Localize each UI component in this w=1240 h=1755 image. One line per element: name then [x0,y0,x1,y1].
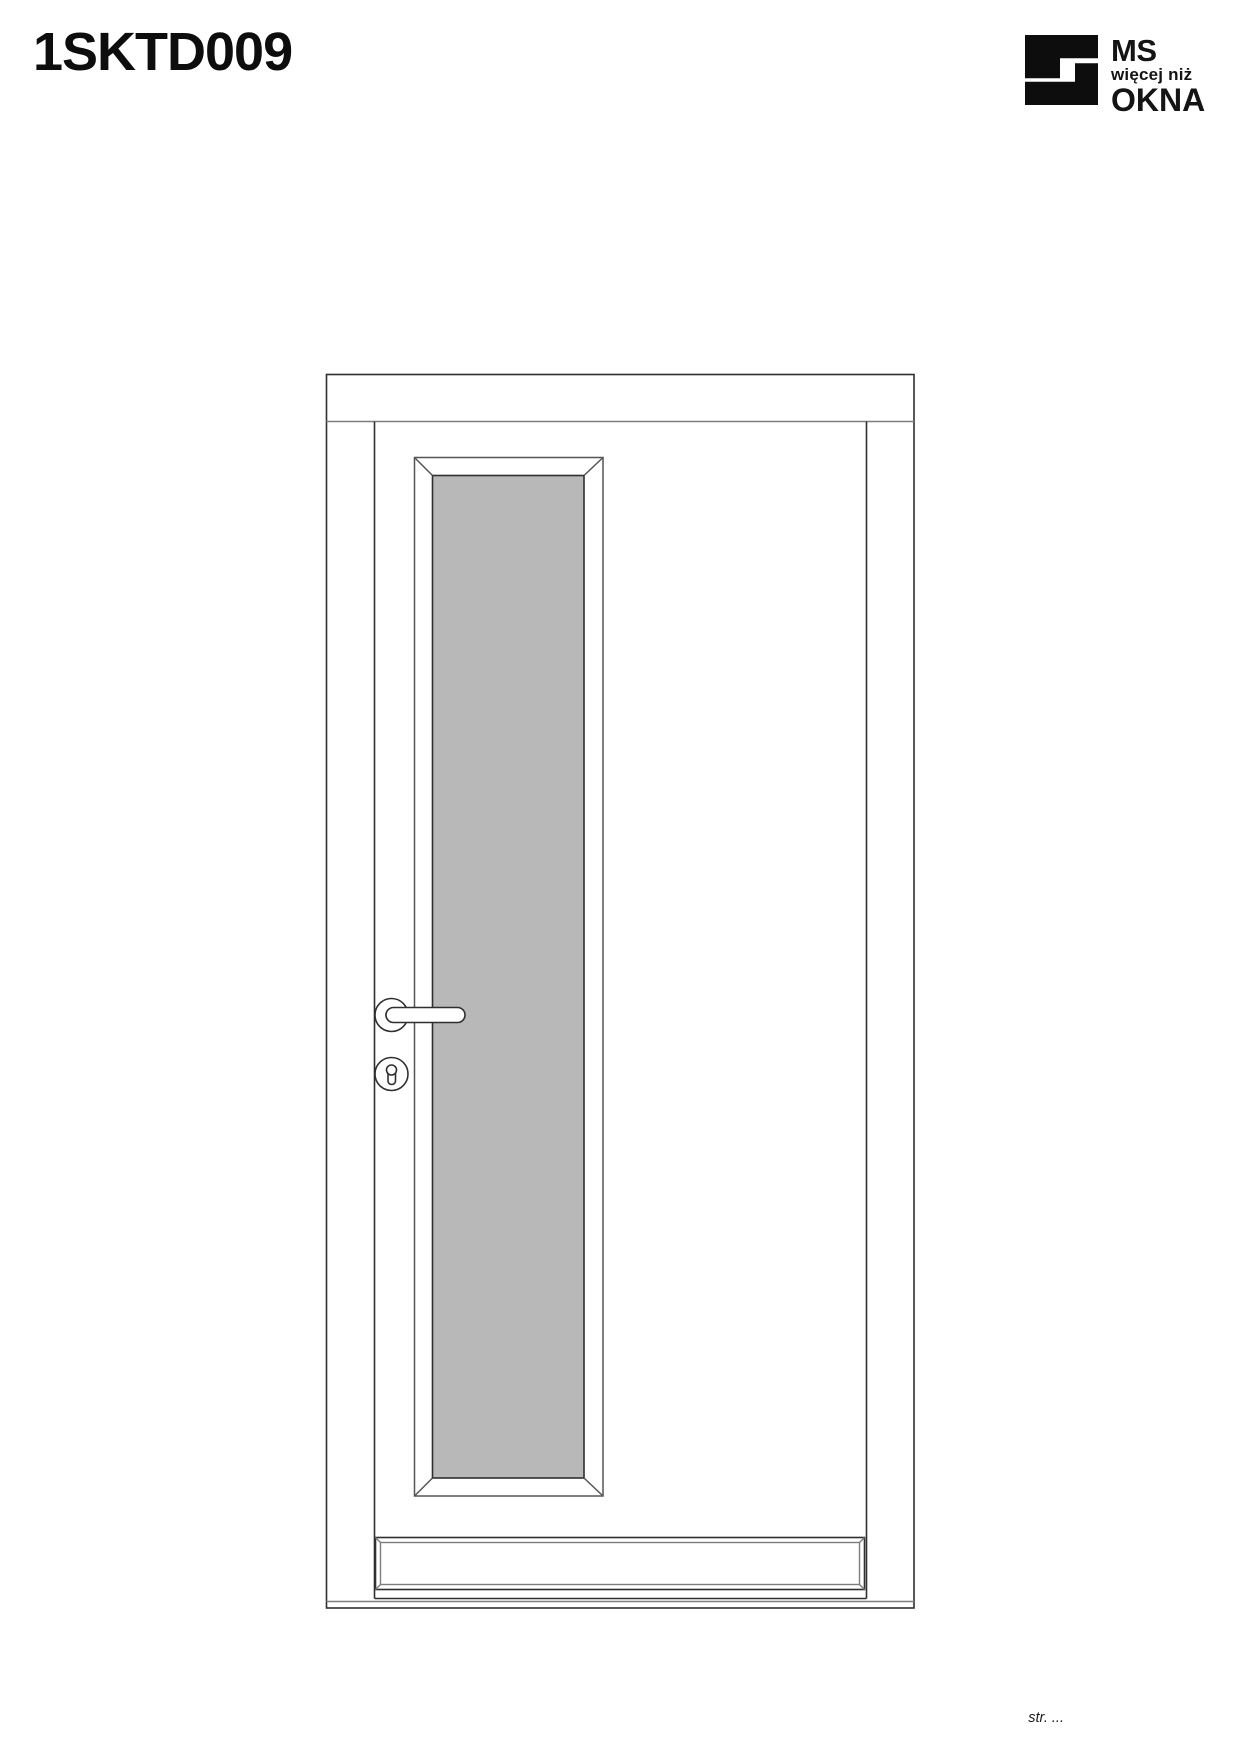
glazing-miter-bottom-right [584,1478,603,1496]
catalog-page: 1SKTD009 MS więcej niż OKNA [0,0,1240,1755]
page-number: str. ... [1028,1710,1064,1726]
glazing-miter-top-left [415,458,433,476]
glazing [415,458,604,1497]
glazing-miter-top-right [584,458,603,476]
glazing-miter-bottom-left [415,1478,433,1496]
kick-panel-inner-outline [381,1543,860,1585]
kick-panel [376,1538,865,1590]
glass-panel [433,476,585,1479]
door-elevation-drawing [0,0,1240,1755]
lock-cylinder [375,1058,408,1091]
handle-lever [386,1008,465,1023]
kick-panel-outline [376,1538,865,1590]
cylinder-head [387,1065,397,1075]
